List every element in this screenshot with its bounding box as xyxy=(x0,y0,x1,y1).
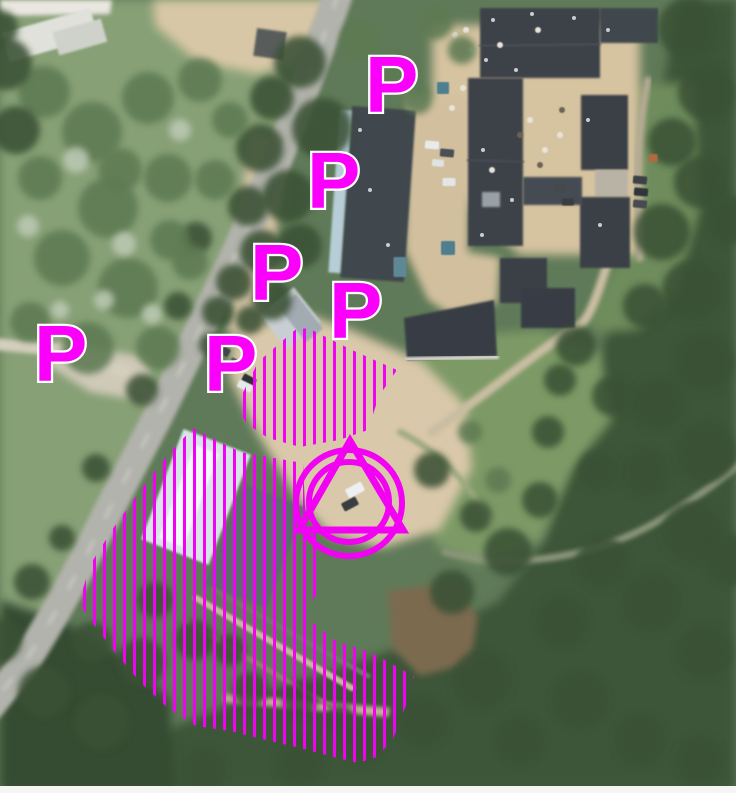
parking-marker-5[interactable]: P xyxy=(204,319,257,408)
parking-marker-2[interactable]: P xyxy=(307,136,360,225)
map-overlay-layer: PPPPPP xyxy=(0,0,736,793)
parking-marker-1[interactable]: P xyxy=(365,40,418,129)
parking-marker-3[interactable]: P xyxy=(250,228,303,317)
parking-marker-6[interactable]: P xyxy=(34,309,87,398)
aerial-map-canvas[interactable]: PPPPPP xyxy=(0,0,736,793)
parking-marker-4[interactable]: P xyxy=(329,266,382,355)
circle-triangle-symbol[interactable] xyxy=(296,441,403,556)
hatch-area-south[interactable] xyxy=(79,428,414,763)
